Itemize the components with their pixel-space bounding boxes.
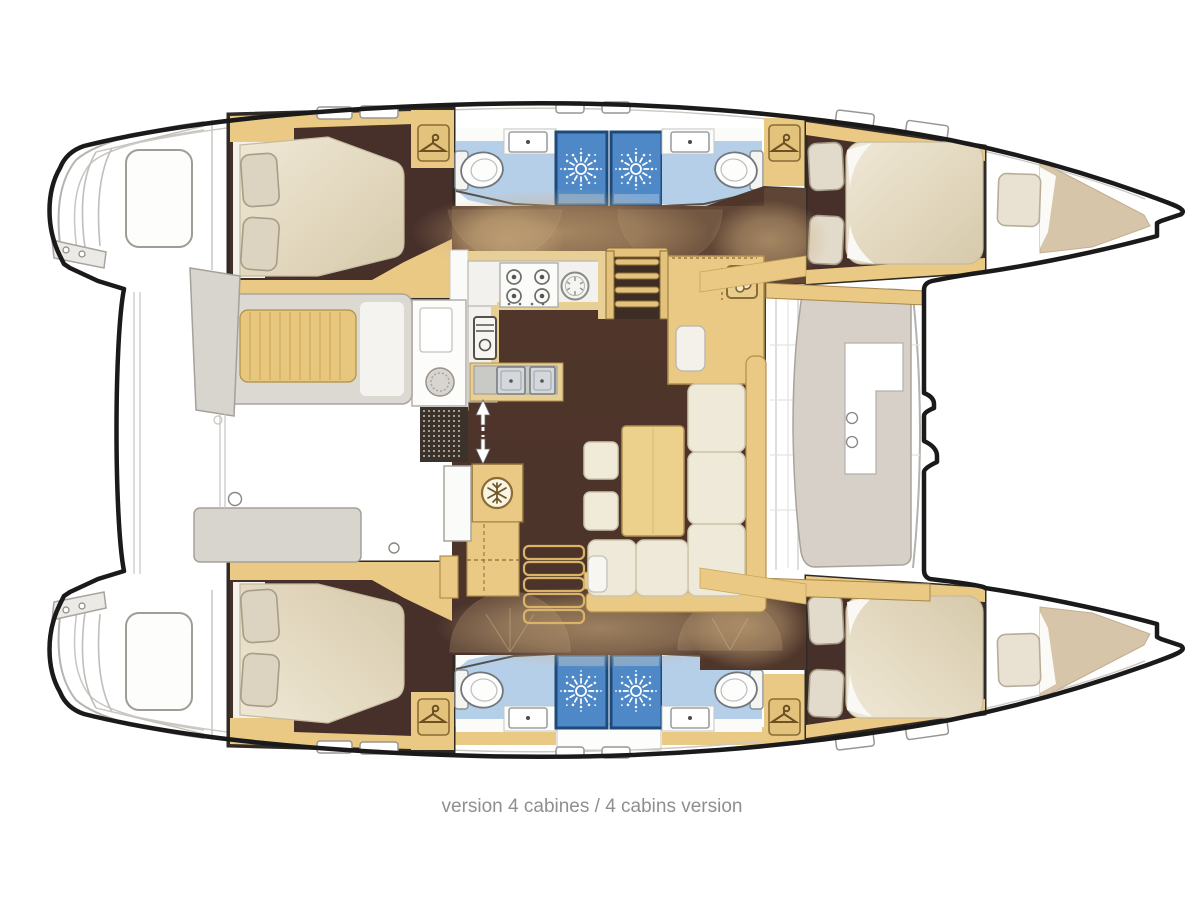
svg-text:version 4 cabines / 4 cabins v: version 4 cabines / 4 cabins version xyxy=(442,796,743,817)
